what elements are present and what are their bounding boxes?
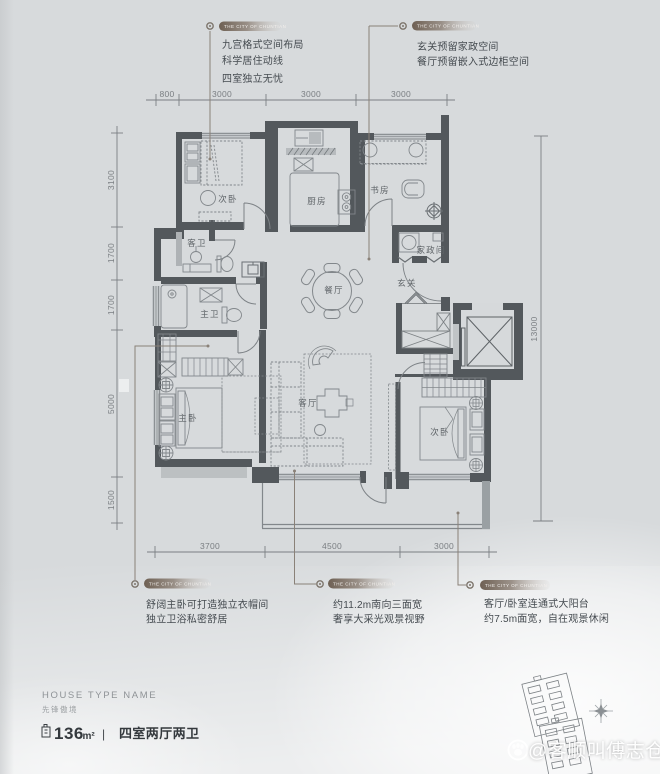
svg-text:餐厅: 餐厅	[324, 285, 343, 295]
svg-text:3000: 3000	[301, 89, 321, 99]
svg-text:THE CITY OF CHUNTIAN: THE CITY OF CHUNTIAN	[333, 582, 395, 587]
svg-text:THE CITY OF CHUNTIAN: THE CITY OF CHUNTIAN	[485, 583, 547, 588]
svg-text:九宫格式空间布局: 九宫格式空间布局	[222, 38, 304, 51]
svg-text:主卫: 主卫	[200, 309, 219, 319]
svg-text:13000: 13000	[529, 316, 539, 341]
svg-text:客厅: 客厅	[298, 398, 317, 408]
svg-text:四室独立无忧: 四室独立无忧	[222, 72, 283, 85]
svg-text:3100: 3100	[106, 170, 116, 190]
svg-text:餐厅预留嵌入式边柜空间: 餐厅预留嵌入式边柜空间	[417, 55, 529, 68]
svg-text:先锋傲境: 先锋傲境	[42, 704, 78, 714]
svg-text:客厅/卧室连通式大阳台: 客厅/卧室连通式大阳台	[484, 597, 589, 610]
svg-text:THE CITY OF CHUNTIAN: THE CITY OF CHUNTIAN	[417, 24, 479, 29]
svg-text:1500: 1500	[106, 490, 116, 510]
svg-text:次卧: 次卧	[218, 194, 237, 204]
svg-text:1700: 1700	[106, 243, 116, 263]
svg-text:主卧: 主卧	[178, 413, 197, 423]
svg-text:5000: 5000	[106, 394, 116, 414]
svg-text:玄关预留家政空间: 玄关预留家政空间	[417, 40, 499, 53]
svg-text:厨房: 厨房	[307, 196, 326, 206]
svg-text:家政间: 家政间	[416, 245, 445, 255]
svg-text:科学居住动线: 科学居住动线	[222, 54, 283, 67]
svg-text:3000: 3000	[212, 89, 232, 99]
svg-text:4500: 4500	[322, 541, 342, 551]
svg-text:800: 800	[159, 89, 174, 99]
svg-text:THE CITY OF CHUNTIAN: THE CITY OF CHUNTIAN	[224, 24, 286, 29]
svg-text:@客顺叫傅志仓: @客顺叫傅志仓	[528, 740, 660, 762]
svg-text:客卫: 客卫	[187, 238, 206, 248]
svg-text:HOUSE TYPE NAME: HOUSE TYPE NAME	[42, 690, 157, 701]
svg-text:3000: 3000	[391, 89, 411, 99]
svg-text:m²: m²	[83, 731, 96, 742]
svg-text:舒阔主卧可打造独立衣帽间: 舒阔主卧可打造独立衣帽间	[146, 598, 268, 611]
svg-text:次卧: 次卧	[430, 427, 449, 437]
svg-text:约11.2m南向三面宽: 约11.2m南向三面宽	[333, 598, 422, 611]
svg-text:136: 136	[54, 724, 84, 743]
svg-text:书房: 书房	[370, 185, 389, 195]
svg-text:1700: 1700	[106, 295, 116, 315]
svg-text:约7.5m面宽，自在观景休闲: 约7.5m面宽，自在观景休闲	[484, 612, 609, 625]
svg-text:奢享大采光观景视野: 奢享大采光观景视野	[333, 613, 425, 626]
svg-text:玄关: 玄关	[397, 278, 416, 288]
svg-text:独立卫浴私密舒居: 独立卫浴私密舒居	[146, 613, 228, 626]
svg-text:3000: 3000	[434, 541, 454, 551]
svg-text:3700: 3700	[200, 541, 220, 551]
svg-text:THE CITY OF CHUNTIAN: THE CITY OF CHUNTIAN	[149, 582, 211, 587]
svg-text:|: |	[102, 727, 105, 741]
svg-text:四室两厅两卫: 四室两厅两卫	[119, 726, 199, 741]
